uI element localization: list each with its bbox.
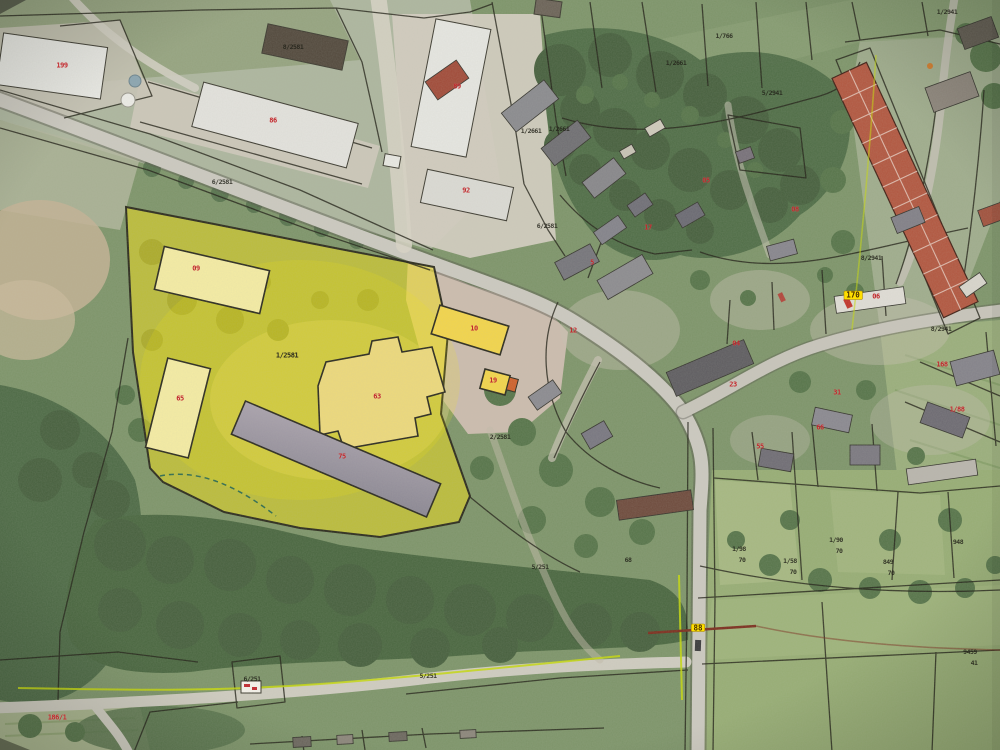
scan-artifacts [0, 0, 1000, 750]
map-canvas [0, 0, 1000, 750]
aerial-cadastral-map: 1998689920965637510191205085170423316606… [0, 0, 1000, 750]
